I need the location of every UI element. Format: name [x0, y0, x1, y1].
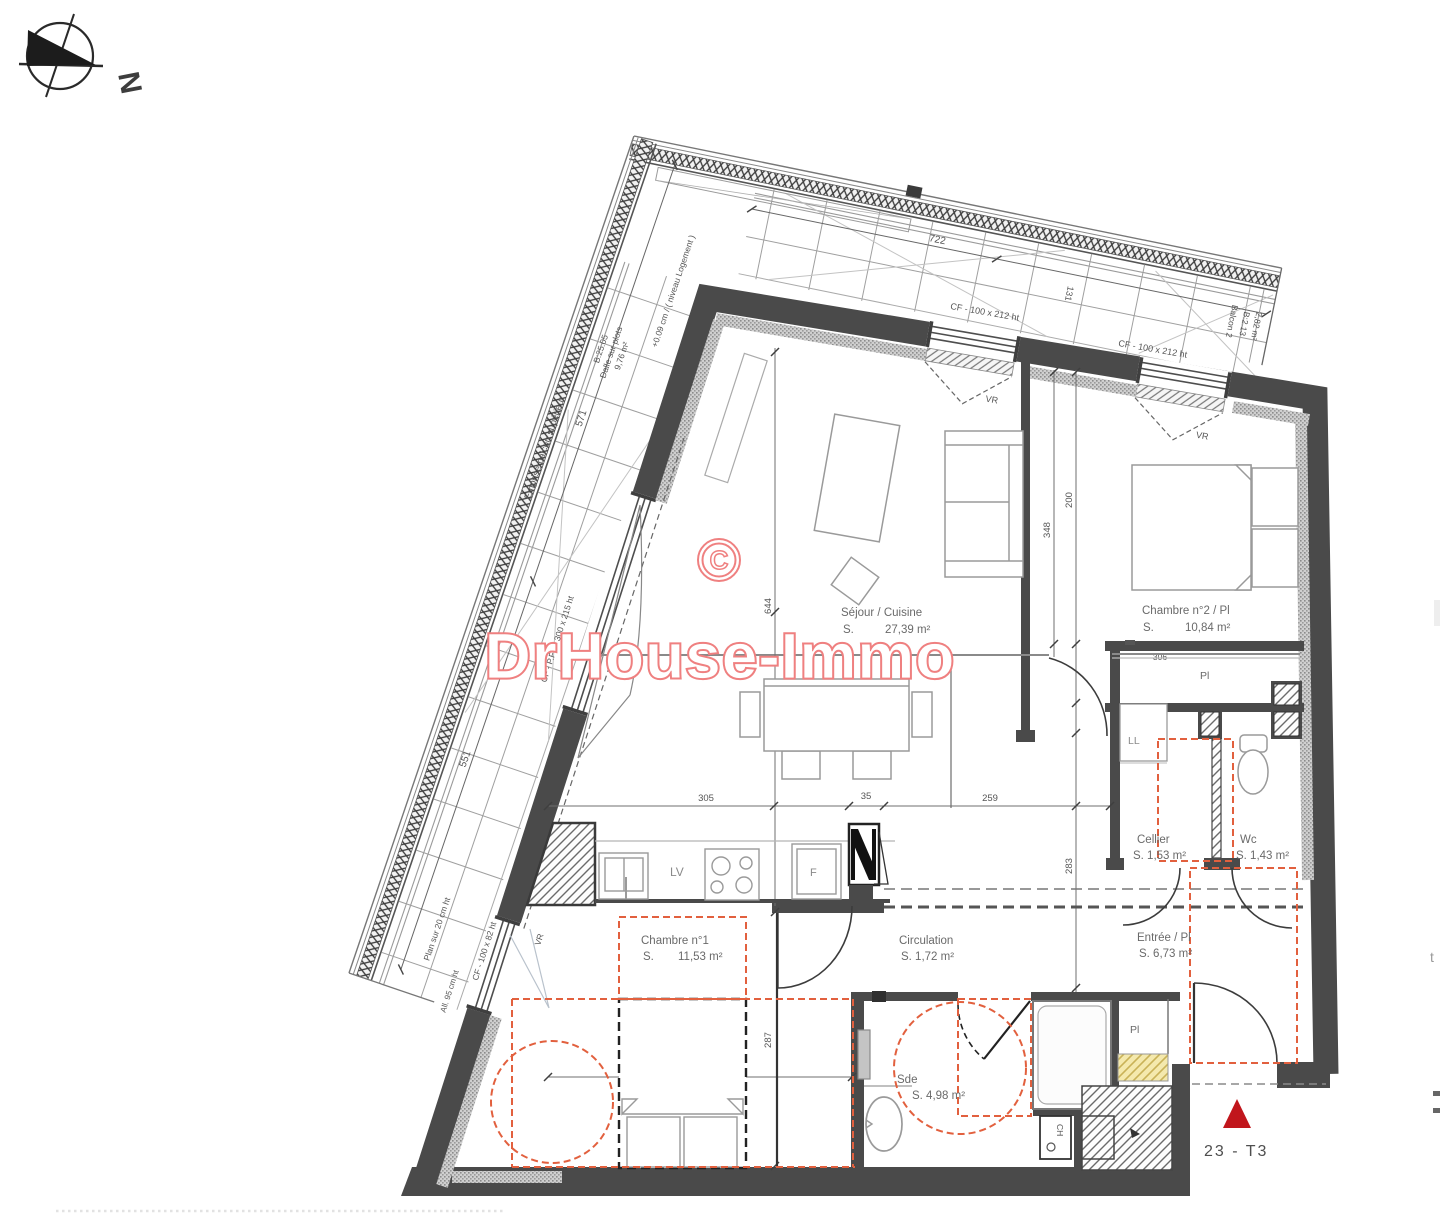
svg-text:Chambre n°2 / Pl: Chambre n°2 / Pl [1142, 605, 1230, 617]
svg-text:Wc: Wc [1240, 834, 1257, 846]
svg-text:259: 259 [982, 793, 998, 804]
svg-text:S. 1,53 m²: S. 1,53 m² [1133, 850, 1186, 862]
svg-text:644: 644 [763, 598, 774, 614]
svg-text:Entrée / Pl: Entrée / Pl [1137, 932, 1191, 944]
svg-text:Circulation: Circulation [899, 935, 953, 947]
svg-text:LL: LL [1128, 735, 1140, 747]
svg-text:S. 4,98 m²: S. 4,98 m² [912, 1090, 965, 1102]
svg-text:LV: LV [670, 865, 684, 879]
svg-text:S. 6,73 m²: S. 6,73 m² [1139, 948, 1192, 960]
svg-text:t: t [1430, 949, 1434, 965]
svg-text:11,53 m²: 11,53 m² [678, 951, 723, 963]
svg-text:Séjour / Cuisine: Séjour / Cuisine [841, 607, 922, 619]
svg-text:Sde: Sde [897, 1074, 917, 1086]
svg-text:S. 1,43 m²: S. 1,43 m² [1236, 850, 1289, 862]
svg-text:Chambre n°1: Chambre n°1 [641, 935, 709, 947]
svg-text:200: 200 [1064, 492, 1075, 508]
svg-text:S. 1,72 m²: S. 1,72 m² [901, 951, 954, 963]
svg-text:Cellier: Cellier [1137, 834, 1170, 846]
svg-text:10,84 m²: 10,84 m² [1185, 622, 1231, 634]
svg-text:F: F [810, 867, 817, 879]
svg-text:S.: S. [643, 951, 654, 963]
svg-text:S.: S. [1143, 622, 1154, 634]
svg-text:Pl: Pl [1130, 1024, 1139, 1036]
svg-text:C: C [710, 545, 729, 575]
svg-text:Pl: Pl [1200, 670, 1209, 682]
svg-text:348: 348 [1042, 522, 1053, 538]
svg-text:283: 283 [1064, 858, 1075, 874]
svg-text:DrHouse-Immo: DrHouse-Immo [485, 620, 956, 692]
svg-text:23 - T3: 23 - T3 [1204, 1143, 1268, 1160]
svg-text:287: 287 [763, 1032, 774, 1048]
svg-text:305: 305 [698, 793, 714, 804]
svg-text:35: 35 [861, 791, 872, 802]
svg-text:CH: CH [1055, 1124, 1065, 1136]
